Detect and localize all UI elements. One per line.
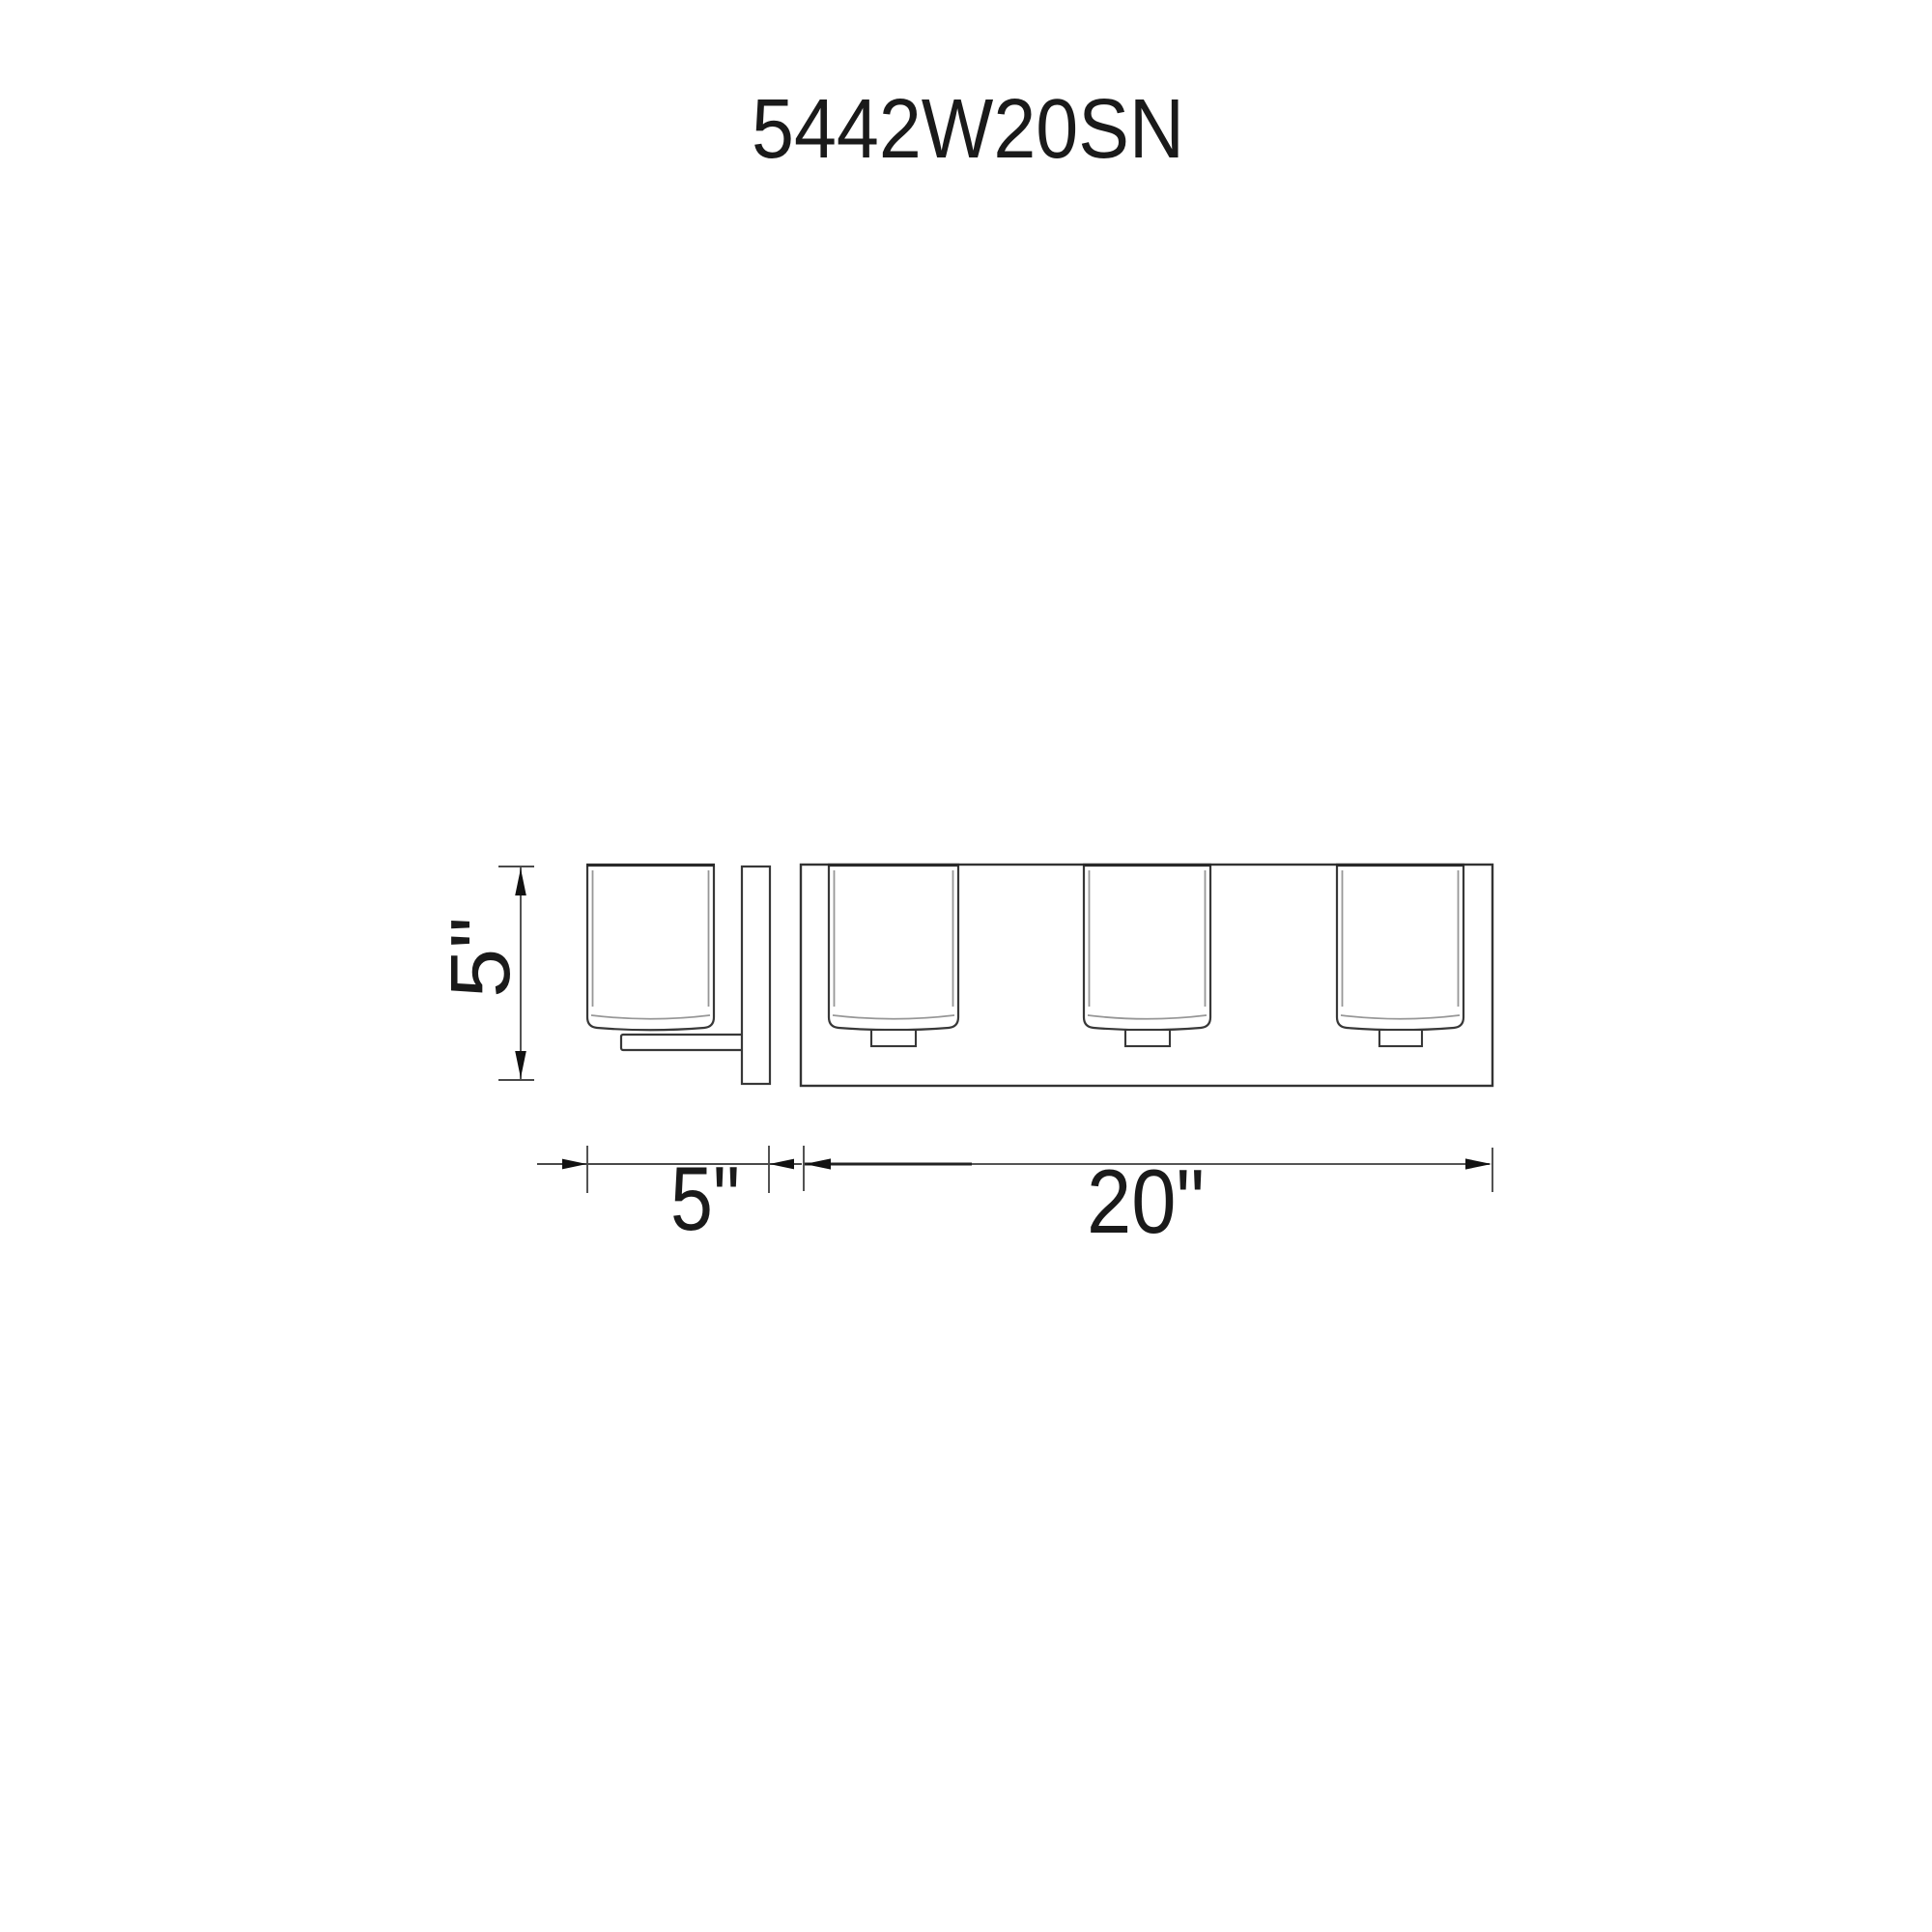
svg-text:5": 5" bbox=[434, 917, 527, 998]
svg-text:20": 20" bbox=[1087, 1151, 1205, 1252]
svg-text:5442W20SN: 5442W20SN bbox=[752, 82, 1184, 176]
svg-text:5": 5" bbox=[670, 1148, 740, 1249]
